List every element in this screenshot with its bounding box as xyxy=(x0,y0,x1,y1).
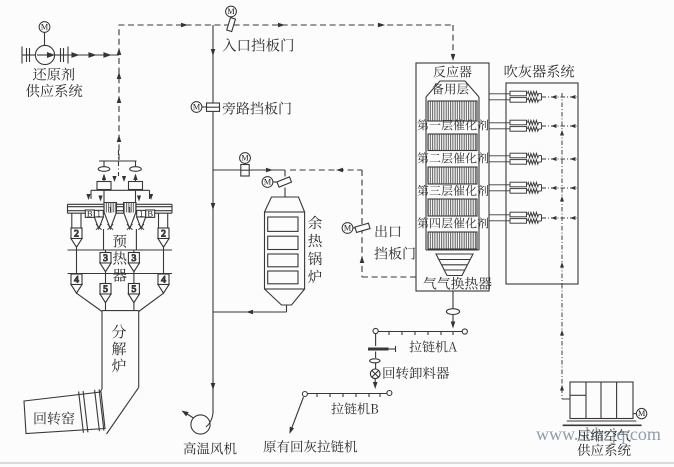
svg-text:M: M xyxy=(264,178,272,187)
svg-text:M: M xyxy=(241,154,249,163)
svg-text:2: 2 xyxy=(74,230,79,240)
svg-text:4: 4 xyxy=(74,276,79,286)
svg-text:B: B xyxy=(87,208,93,218)
svg-text:4: 4 xyxy=(161,276,166,286)
svg-text:5: 5 xyxy=(103,285,108,295)
svg-text:5: 5 xyxy=(132,285,137,295)
svg-text:3: 3 xyxy=(103,254,108,264)
svg-text:1: 1 xyxy=(108,205,112,215)
svg-text:M: M xyxy=(41,23,49,32)
svg-text:M: M xyxy=(638,409,646,418)
svg-text:1: 1 xyxy=(139,209,143,218)
svg-text:1: 1 xyxy=(97,209,101,218)
svg-text:2: 2 xyxy=(161,230,166,240)
svg-text:M: M xyxy=(344,224,352,233)
svg-text:M: M xyxy=(193,103,201,112)
svg-text:3: 3 xyxy=(132,254,137,264)
svg-text:B: B xyxy=(147,208,153,218)
svg-text:1: 1 xyxy=(128,205,132,215)
svg-text:M: M xyxy=(227,7,235,16)
